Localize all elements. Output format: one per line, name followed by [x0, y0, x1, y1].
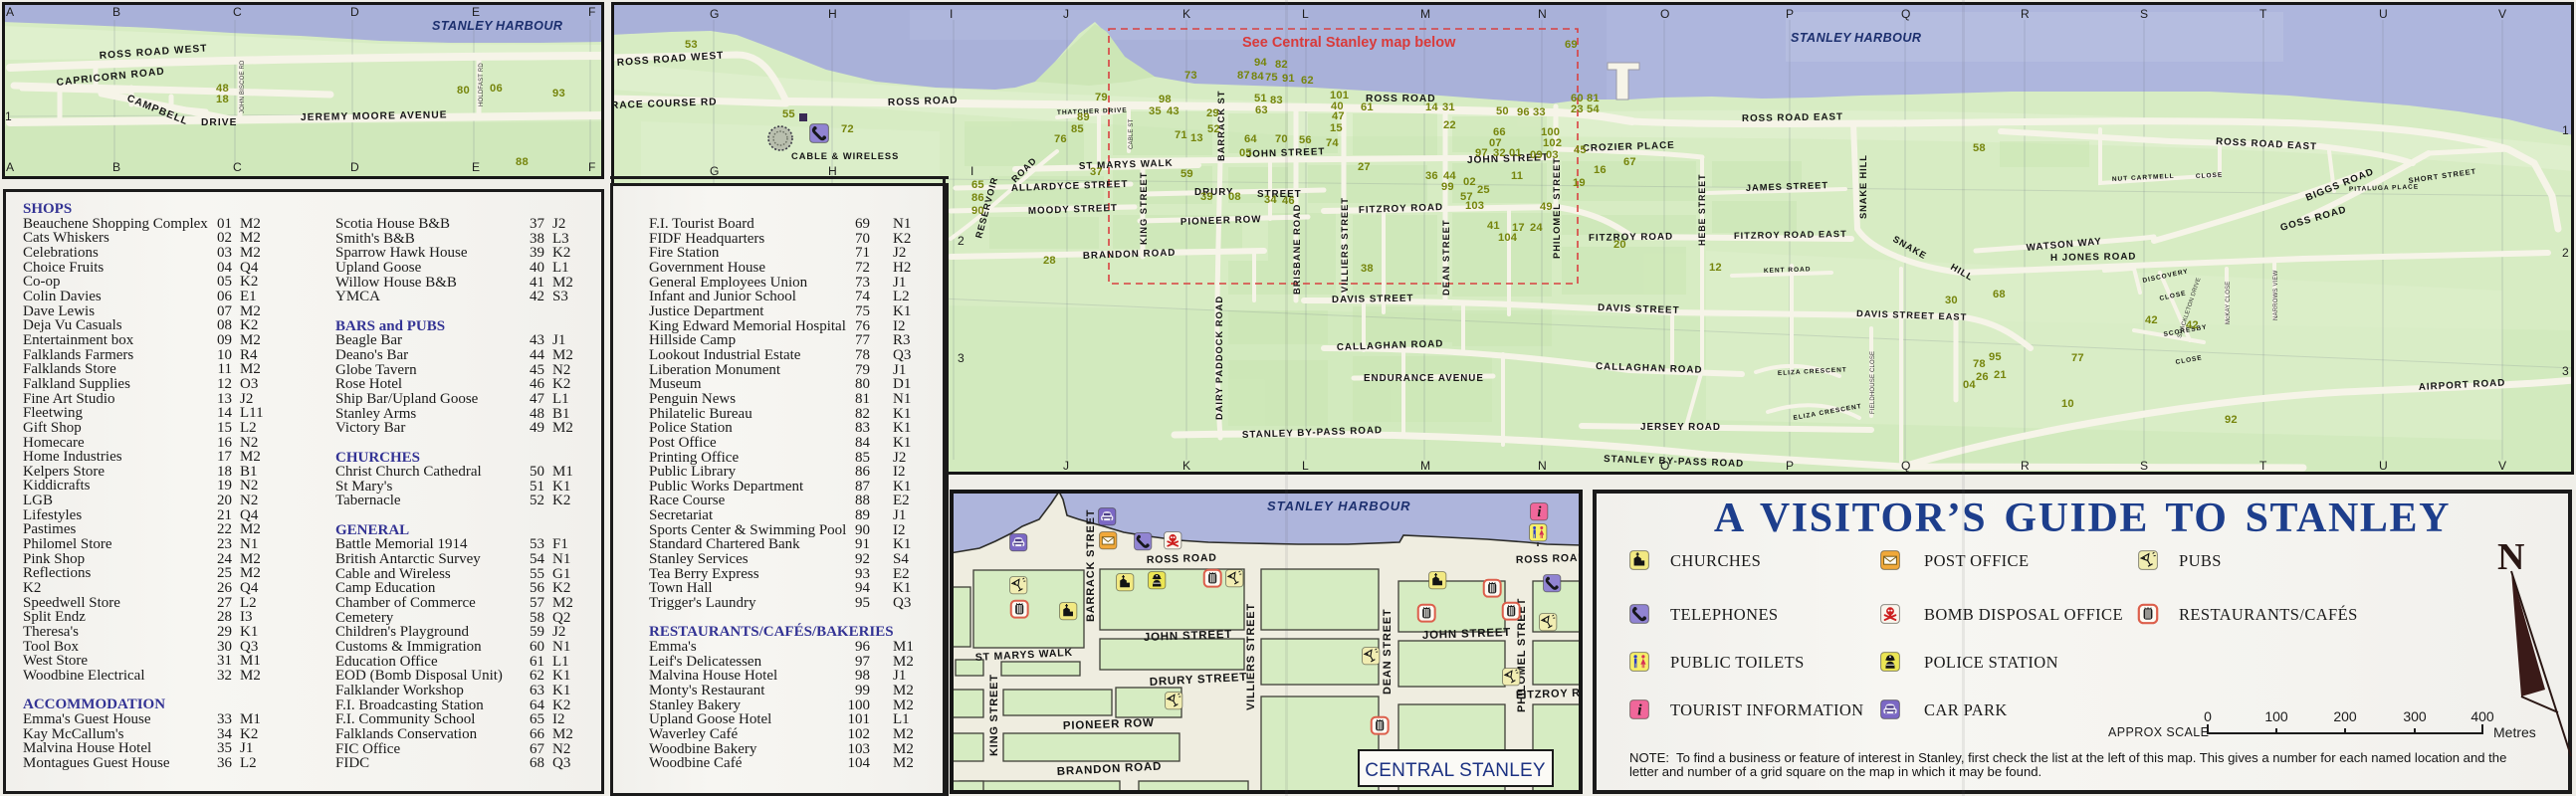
svg-text:I: I — [970, 164, 973, 178]
svg-text:U: U — [2379, 7, 2388, 21]
svg-text:37: 37 — [1090, 166, 1103, 178]
svg-text:31: 31 — [1442, 101, 1455, 113]
svg-text:75: 75 — [1265, 72, 1278, 84]
svg-text:O: O — [1660, 7, 1669, 21]
svg-text:38: 38 — [1361, 263, 1374, 275]
svg-text:O: O — [1660, 459, 1669, 473]
svg-text:56: 56 — [1299, 134, 1312, 146]
svg-text:1: 1 — [5, 109, 12, 123]
svg-text:55: 55 — [782, 108, 795, 120]
svg-text:32: 32 — [1493, 147, 1506, 159]
svg-text:DEAN STREET: DEAN STREET — [1441, 220, 1451, 297]
svg-text:L: L — [1302, 7, 1309, 21]
svg-text:T: T — [2259, 459, 2267, 473]
svg-text:HOLDFAST RD: HOLDFAST RD — [479, 63, 485, 106]
svg-text:CABLE & WIRELESS: CABLE & WIRELESS — [791, 151, 899, 161]
svg-text:98: 98 — [1159, 94, 1172, 105]
svg-text:C: C — [233, 5, 242, 19]
svg-text:S: S — [2140, 7, 2148, 21]
svg-text:R: R — [2021, 459, 2030, 473]
svg-text:VILLIERS STREET: VILLIERS STREET — [1245, 603, 1257, 710]
svg-text:TELEPHONES: TELEPHONES — [1670, 605, 1779, 624]
svg-text:68: 68 — [1993, 289, 2006, 300]
svg-text:63: 63 — [1255, 104, 1268, 116]
svg-text:1: 1 — [2562, 123, 2569, 137]
svg-text:84: 84 — [1251, 71, 1264, 83]
svg-text:I: I — [950, 7, 953, 21]
svg-text:96: 96 — [1517, 106, 1530, 118]
svg-text:BARRACK STREET: BARRACK STREET — [1085, 509, 1097, 622]
svg-text:B: B — [112, 5, 120, 19]
svg-text:T: T — [2259, 7, 2267, 21]
svg-text:61: 61 — [1361, 101, 1374, 113]
svg-text:94: 94 — [1254, 57, 1267, 69]
svg-text:45: 45 — [1574, 144, 1587, 156]
svg-text:35: 35 — [1149, 105, 1162, 117]
svg-text:25: 25 — [1477, 184, 1490, 196]
svg-text:A: A — [6, 160, 15, 174]
svg-text:10: 10 — [2061, 398, 2074, 410]
svg-text:U: U — [2379, 459, 2388, 473]
svg-text:77: 77 — [2071, 352, 2084, 364]
svg-text:18: 18 — [216, 94, 229, 105]
svg-text:36: 36 — [1425, 170, 1438, 182]
svg-text:DEAN STREET: DEAN STREET — [1382, 609, 1394, 695]
svg-text:22: 22 — [1443, 119, 1456, 131]
svg-text:FITZROY ROAD: FITZROY ROAD — [1589, 232, 1673, 244]
svg-text:3: 3 — [2562, 364, 2569, 378]
svg-text:15: 15 — [1330, 122, 1343, 134]
svg-text:53: 53 — [685, 39, 698, 51]
svg-text:DRIVE: DRIVE — [201, 117, 238, 128]
svg-text:52: 52 — [1207, 123, 1220, 135]
svg-text:91: 91 — [1282, 73, 1295, 85]
svg-text:67: 67 — [1623, 156, 1636, 168]
svg-text:03: 03 — [1546, 149, 1559, 161]
svg-text:0: 0 — [2204, 708, 2212, 724]
svg-text:VILLIERS STREET: VILLIERS STREET — [1340, 197, 1350, 293]
svg-text:80: 80 — [457, 85, 470, 97]
svg-text:69: 69 — [1565, 39, 1578, 51]
svg-text:DAIRY PADDOCK ROAD: DAIRY PADDOCK ROAD — [1214, 296, 1224, 420]
svg-text:16: 16 — [1594, 164, 1607, 176]
svg-text:2: 2 — [2562, 246, 2569, 260]
svg-text:APPROX SCALE: APPROX SCALE — [2108, 725, 2209, 739]
svg-text:59: 59 — [1181, 168, 1193, 180]
svg-text:06: 06 — [490, 83, 503, 95]
svg-text:DAVIS STREET: DAVIS STREET — [1332, 294, 1414, 305]
svg-text:86: 86 — [971, 192, 984, 204]
svg-text:33: 33 — [1533, 106, 1546, 118]
svg-text:P: P — [1786, 7, 1794, 21]
svg-text:27: 27 — [1358, 161, 1371, 173]
svg-text:400: 400 — [2470, 708, 2494, 724]
svg-text:97: 97 — [1475, 147, 1488, 159]
svg-text:POST OFFICE: POST OFFICE — [1924, 551, 2029, 570]
svg-text:SNAKE HILL: SNAKE HILL — [1858, 154, 1868, 219]
svg-text:99: 99 — [1441, 181, 1454, 193]
svg-text:BOMB DISPOSAL OFFICE: BOMB DISPOSAL OFFICE — [1924, 605, 2123, 624]
svg-text:90: 90 — [971, 205, 984, 217]
svg-text:104: 104 — [1498, 232, 1518, 244]
svg-text:42: 42 — [2186, 319, 2199, 331]
svg-text:N: N — [1538, 7, 1547, 21]
svg-text:ROSS ROAD: ROSS ROAD — [1516, 552, 1583, 566]
svg-text:79: 79 — [1095, 92, 1108, 103]
svg-text:04: 04 — [1963, 379, 1976, 391]
svg-text:85: 85 — [1071, 123, 1084, 135]
svg-text:12: 12 — [1709, 262, 1722, 274]
svg-text:ENDURANCE AVENUE: ENDURANCE AVENUE — [1364, 373, 1484, 384]
svg-text:BRISBANE ROAD: BRISBANE ROAD — [1292, 204, 1302, 295]
svg-text:TOURIST INFORMATION: TOURIST INFORMATION — [1670, 700, 1863, 719]
svg-text:42: 42 — [2145, 314, 2158, 326]
svg-text:CHURCHES: CHURCHES — [1670, 551, 1761, 570]
svg-text:01: 01 — [1509, 147, 1522, 159]
svg-text:71: 71 — [1175, 129, 1187, 141]
svg-text:Q: Q — [1901, 459, 1910, 473]
svg-text:49: 49 — [1540, 201, 1553, 213]
svg-text:G: G — [710, 7, 719, 21]
svg-text:J: J — [1063, 7, 1069, 21]
svg-text:23: 23 — [1571, 103, 1584, 115]
svg-text:24: 24 — [1530, 222, 1543, 234]
svg-text:65: 65 — [971, 179, 984, 191]
svg-text:KING STREET: KING STREET — [1139, 172, 1149, 245]
svg-text:200: 200 — [2333, 708, 2357, 724]
svg-text:F: F — [588, 5, 595, 19]
svg-text:93: 93 — [552, 88, 565, 99]
svg-text:2: 2 — [958, 234, 965, 248]
svg-text:R: R — [2021, 7, 2030, 21]
svg-text:JOHN BISCOE RD: JOHN BISCOE RD — [240, 60, 246, 113]
svg-text:89: 89 — [1077, 111, 1090, 123]
svg-text:92: 92 — [2225, 414, 2238, 426]
svg-text:13: 13 — [1190, 132, 1203, 144]
svg-text:A: A — [6, 5, 15, 19]
svg-text:E: E — [472, 5, 480, 19]
svg-text:S: S — [2140, 459, 2148, 473]
svg-text:43: 43 — [1167, 105, 1180, 117]
svg-text:H JONES ROAD: H JONES ROAD — [2050, 251, 2137, 264]
svg-text:K: K — [1182, 7, 1190, 21]
svg-text:08: 08 — [1228, 191, 1241, 203]
svg-text:62: 62 — [1301, 75, 1314, 87]
svg-text:K: K — [1182, 459, 1190, 473]
svg-text:FIELDHOUSE CLOSE: FIELDHOUSE CLOSE — [1870, 351, 1876, 414]
svg-text:Metres: Metres — [2493, 724, 2536, 740]
svg-text:29: 29 — [1206, 107, 1219, 119]
svg-text:STANLEY HARBOUR: STANLEY HARBOUR — [1267, 498, 1411, 513]
svg-text:KING STREET: KING STREET — [988, 674, 1000, 756]
svg-text:58: 58 — [1973, 142, 1986, 154]
svg-text:B: B — [112, 160, 120, 174]
svg-text:300: 300 — [2403, 708, 2427, 724]
svg-text:PHILOMEL STREET: PHILOMEL STREET — [1552, 157, 1562, 259]
svg-text:41: 41 — [1487, 220, 1500, 232]
svg-text:PUBLIC TOILETS: PUBLIC TOILETS — [1670, 653, 1805, 672]
svg-text:87: 87 — [1237, 70, 1250, 82]
svg-text:72: 72 — [841, 123, 854, 135]
svg-text:3: 3 — [958, 351, 965, 365]
svg-text:102: 102 — [1543, 137, 1562, 149]
svg-text:26: 26 — [1976, 371, 1989, 383]
svg-text:19: 19 — [1573, 177, 1586, 189]
svg-text:D: D — [350, 5, 359, 19]
svg-text:11: 11 — [1511, 170, 1523, 182]
svg-text:09: 09 — [1530, 149, 1543, 161]
svg-text:RESTAURANTS/CAFÉS: RESTAURANTS/CAFÉS — [2179, 605, 2358, 624]
svg-text:C: C — [233, 160, 242, 174]
svg-text:V: V — [2498, 459, 2507, 473]
svg-text:F: F — [588, 160, 595, 174]
svg-text:CABLE ST: CABLE ST — [1129, 118, 1135, 149]
svg-text:CAR PARK: CAR PARK — [1924, 700, 2008, 719]
svg-text:STANLEY HARBOUR: STANLEY HARBOUR — [1791, 31, 1922, 45]
svg-text:74: 74 — [1326, 137, 1339, 149]
svg-text:54: 54 — [1587, 103, 1600, 115]
svg-text:CENTRAL STANLEY: CENTRAL STANLEY — [1365, 760, 1546, 781]
svg-text:P: P — [1786, 459, 1794, 473]
svg-text:95: 95 — [1989, 351, 2002, 363]
svg-text:D: D — [350, 160, 359, 174]
svg-text:05: 05 — [1239, 147, 1252, 159]
svg-text:103: 103 — [1465, 200, 1484, 212]
svg-text:PUBS: PUBS — [2179, 551, 2222, 570]
svg-text:02: 02 — [1463, 176, 1476, 188]
svg-text:46: 46 — [1282, 195, 1295, 207]
svg-text:51: 51 — [1254, 93, 1267, 104]
svg-text:M: M — [1420, 459, 1430, 473]
svg-text:See Central Stanley map below: See Central Stanley map below — [1242, 35, 1456, 51]
svg-text:39: 39 — [1200, 191, 1213, 203]
svg-text:POLICE STATION: POLICE STATION — [1924, 653, 2058, 672]
svg-text:47: 47 — [1332, 110, 1345, 122]
svg-text:FITZROY ROAD EAST: FITZROY ROAD EAST — [1734, 229, 1847, 241]
svg-text:50: 50 — [1496, 105, 1509, 117]
svg-text:N: N — [1538, 459, 1547, 473]
svg-text:CLOSE: CLOSE — [2196, 172, 2224, 180]
svg-text:NARROWS VIEW: NARROWS VIEW — [2273, 270, 2279, 320]
svg-text:30: 30 — [1945, 295, 1958, 306]
svg-text:83: 83 — [1270, 95, 1283, 106]
svg-text:20: 20 — [1613, 239, 1626, 251]
svg-text:34: 34 — [1264, 194, 1277, 206]
svg-text:H: H — [828, 7, 837, 21]
svg-text:ROSS ROAD: ROSS ROAD — [1147, 552, 1217, 566]
svg-text:73: 73 — [1184, 70, 1197, 82]
svg-text:M: M — [1420, 7, 1430, 21]
svg-text:ROSS ROAD EAST: ROSS ROAD EAST — [1742, 111, 1843, 124]
svg-text:J: J — [1063, 459, 1069, 473]
svg-text:78: 78 — [1973, 358, 1986, 370]
svg-text:E: E — [472, 160, 480, 174]
svg-text:HEBE STREET: HEBE STREET — [1697, 174, 1707, 246]
svg-text:JERSEY ROAD: JERSEY ROAD — [1640, 422, 1721, 433]
svg-text:21: 21 — [1994, 369, 2007, 381]
svg-text:100: 100 — [2264, 708, 2288, 724]
svg-text:76: 76 — [1054, 133, 1067, 145]
svg-text:88: 88 — [516, 156, 529, 168]
svg-text:Q: Q — [1901, 7, 1910, 21]
svg-text:14: 14 — [1425, 101, 1438, 113]
svg-text:McKAY CLOSE: McKAY CLOSE — [2226, 282, 2232, 324]
svg-text:V: V — [2498, 7, 2507, 21]
svg-text:64: 64 — [1244, 133, 1257, 145]
svg-text:STANLEY HARBOUR: STANLEY HARBOUR — [432, 19, 563, 33]
svg-text:L: L — [1302, 459, 1309, 473]
svg-text:28: 28 — [1043, 255, 1056, 267]
